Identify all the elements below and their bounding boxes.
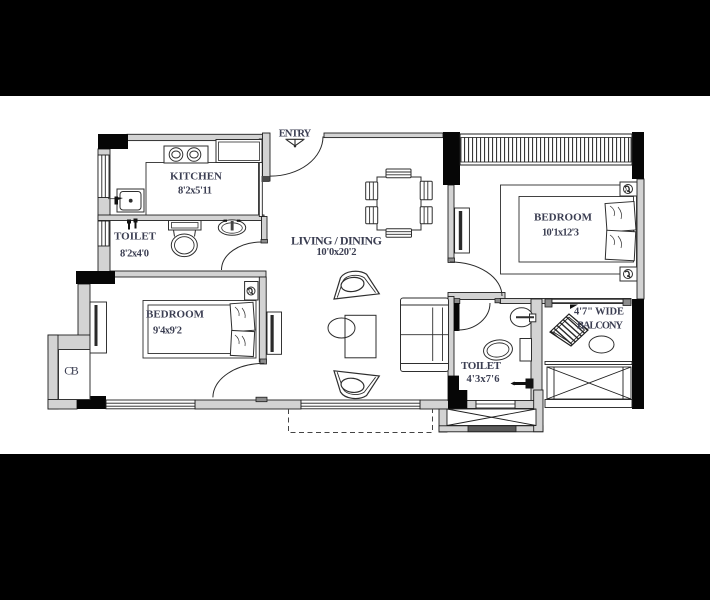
svg-text:BALCONY: BALCONY xyxy=(577,320,623,331)
svg-text:BEDROOM: BEDROOM xyxy=(146,309,205,321)
svg-text:9'4x9'2: 9'4x9'2 xyxy=(153,325,182,336)
svg-text:ENTRY: ENTRY xyxy=(279,128,312,139)
svg-text:10'0x20'2: 10'0x20'2 xyxy=(317,247,357,258)
svg-text:CB: CB xyxy=(64,364,79,378)
svg-text:4'7" WIDE: 4'7" WIDE xyxy=(574,306,624,317)
svg-text:TOILET: TOILET xyxy=(114,231,157,243)
svg-text:10'1x12'3: 10'1x12'3 xyxy=(542,227,579,238)
svg-text:8'2x4'0: 8'2x4'0 xyxy=(120,248,149,259)
svg-text:4'3x7'6: 4'3x7'6 xyxy=(467,374,500,385)
svg-text:BEDROOM: BEDROOM xyxy=(534,212,593,224)
svg-text:8'2x5'11: 8'2x5'11 xyxy=(178,185,212,196)
svg-text:TOILET: TOILET xyxy=(461,360,502,372)
svg-text:KITCHEN: KITCHEN xyxy=(170,171,222,183)
svg-text:LIVING / DINING: LIVING / DINING xyxy=(291,233,382,247)
